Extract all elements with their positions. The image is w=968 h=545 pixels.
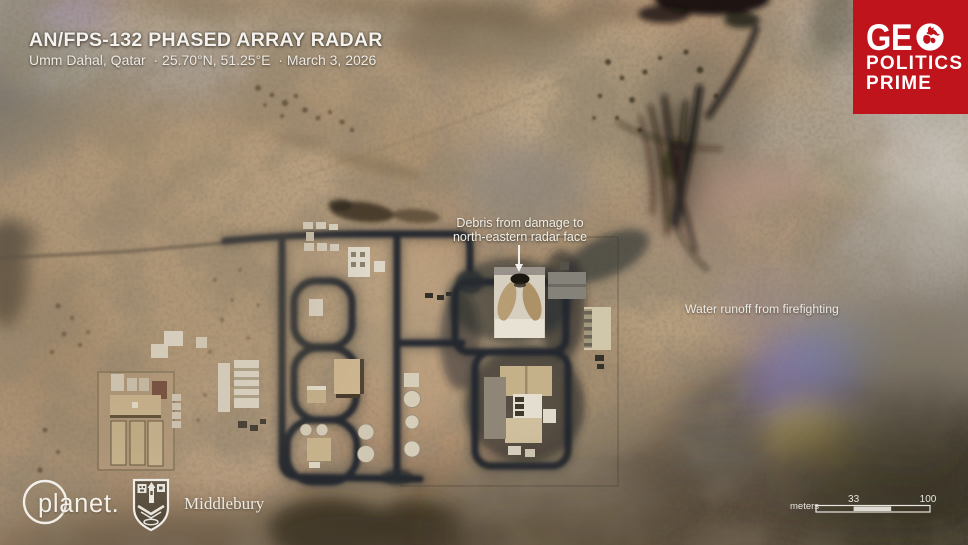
svg-text:33: 33 xyxy=(848,494,860,505)
svg-text:100: 100 xyxy=(920,494,937,505)
